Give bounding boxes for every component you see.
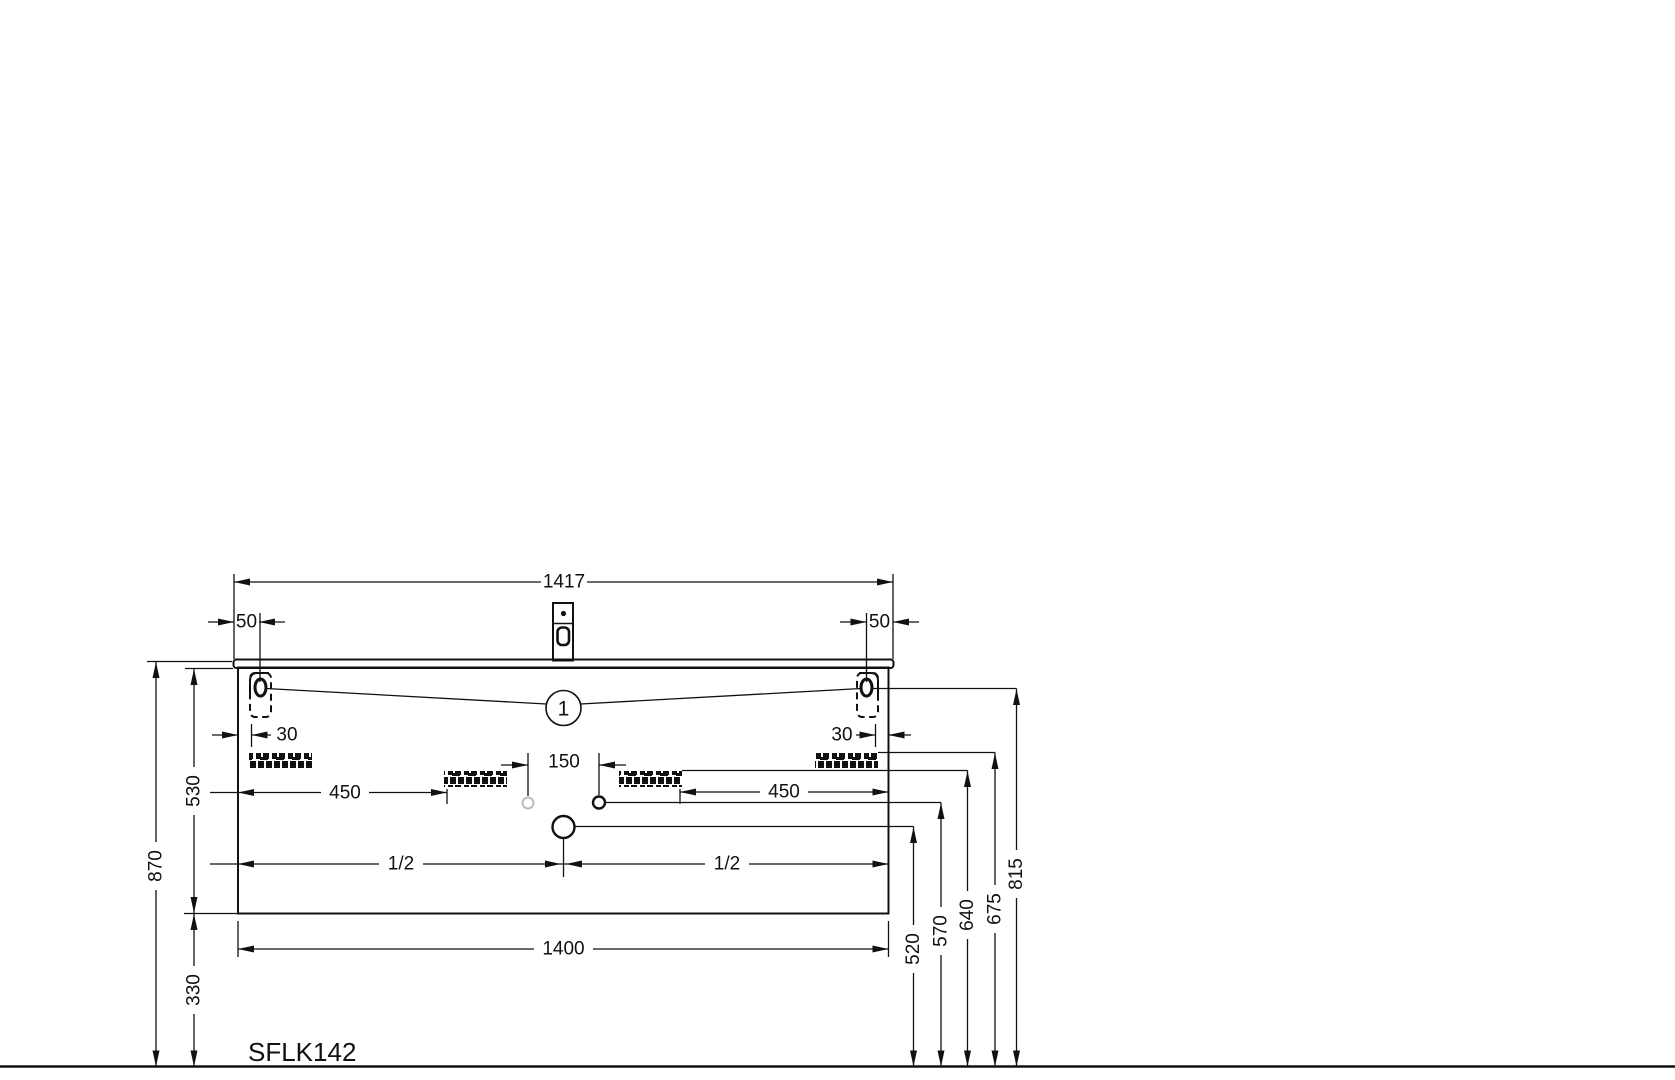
siphon-hole-center xyxy=(553,816,575,838)
faucet-slot xyxy=(558,628,570,646)
dim-label-520: 520 xyxy=(903,933,924,965)
dim-height-siphon: 520 xyxy=(575,827,925,1067)
mounting-rail-outer-left xyxy=(249,752,312,768)
dim-offset-right: 50 xyxy=(840,612,919,683)
vanity-technical-drawing-page: 1 1417 50 50 3 xyxy=(0,0,1675,1080)
dim-label-150: 150 xyxy=(548,752,580,773)
leader-line-left xyxy=(266,689,547,705)
mounting-rail-center-left xyxy=(444,771,507,787)
dim-label-450-right: 450 xyxy=(768,782,800,803)
dim-offset-left: 50 xyxy=(208,612,285,683)
dim-label-30-right: 30 xyxy=(831,725,852,746)
dim-label-640: 640 xyxy=(957,899,978,931)
mounting-bracket-right xyxy=(857,673,878,717)
mounting-rail-center-right xyxy=(619,771,682,787)
dim-height-bracket: 815 xyxy=(872,689,1028,1067)
drain-hole-left-faint xyxy=(523,798,534,809)
dim-bracket-edge-right: 30 xyxy=(831,724,911,747)
drain-hole-right xyxy=(593,797,605,809)
dim-label-450-left: 450 xyxy=(329,783,361,804)
product-code: SFLK142 xyxy=(248,1037,356,1067)
mounting-rail-outer-right xyxy=(815,752,878,768)
dim-label-50-left: 50 xyxy=(236,612,257,633)
dim-cabinet-width: 1400 xyxy=(238,921,889,960)
dim-rail-inset-right: 450 xyxy=(680,782,889,805)
dim-half-left: 1/2 xyxy=(210,854,564,875)
dim-label-50-right: 50 xyxy=(869,612,890,633)
dim-height-drain: 570 xyxy=(606,803,953,1067)
dim-drain-spacing: 150 xyxy=(501,752,626,797)
balloon-callout: 1 xyxy=(266,689,861,726)
leader-line-right xyxy=(581,689,862,705)
dim-rail-inset-left: 450 xyxy=(210,783,447,805)
dim-label-675: 675 xyxy=(985,893,1006,925)
dim-label-half-left: 1/2 xyxy=(388,854,414,875)
dim-label-870: 870 xyxy=(146,850,167,882)
dim-label-half-right: 1/2 xyxy=(714,854,740,875)
faucet-dot xyxy=(561,611,566,616)
dim-bracket-edge-left: 30 xyxy=(212,724,298,747)
dim-label-30-left: 30 xyxy=(276,725,297,746)
dim-label-1400: 1400 xyxy=(542,939,584,960)
technical-drawing: 1 1417 50 50 3 xyxy=(0,0,1675,1080)
dim-height-cabinet: 530 xyxy=(183,669,237,914)
faucet xyxy=(553,603,573,661)
dim-half-right: 1/2 xyxy=(564,838,889,877)
dim-label-330: 330 xyxy=(184,974,205,1006)
dim-label-570: 570 xyxy=(931,915,952,947)
dim-height-clearance: 330 xyxy=(183,914,205,1067)
dim-label-530: 530 xyxy=(184,775,205,807)
dim-label-1417: 1417 xyxy=(543,572,585,593)
dim-label-815: 815 xyxy=(1006,858,1027,890)
balloon-label: 1 xyxy=(558,698,570,721)
